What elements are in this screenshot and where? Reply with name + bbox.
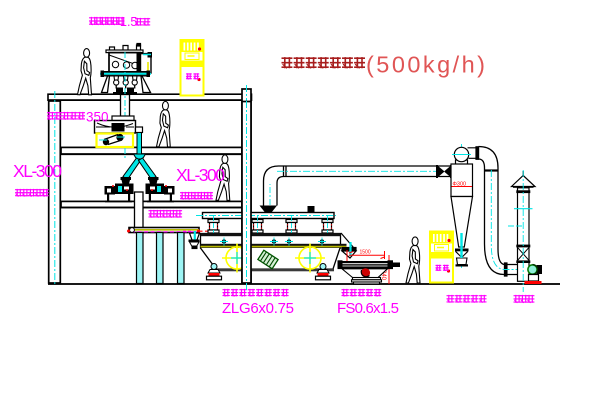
svg-text:XL-300: XL-300 [13,161,62,181]
svg-text:1500: 1500 [360,250,371,256]
svg-text:XL-300: XL-300 [176,165,225,185]
svg-text:1.5: 1.5 [120,15,137,29]
svg-text:(500kg/h): (500kg/h) [366,52,485,78]
svg-text:350: 350 [86,110,109,125]
svg-text:FS0.6x1.5: FS0.6x1.5 [337,300,399,317]
svg-text:ZLG6x0.75: ZLG6x0.75 [222,300,294,317]
